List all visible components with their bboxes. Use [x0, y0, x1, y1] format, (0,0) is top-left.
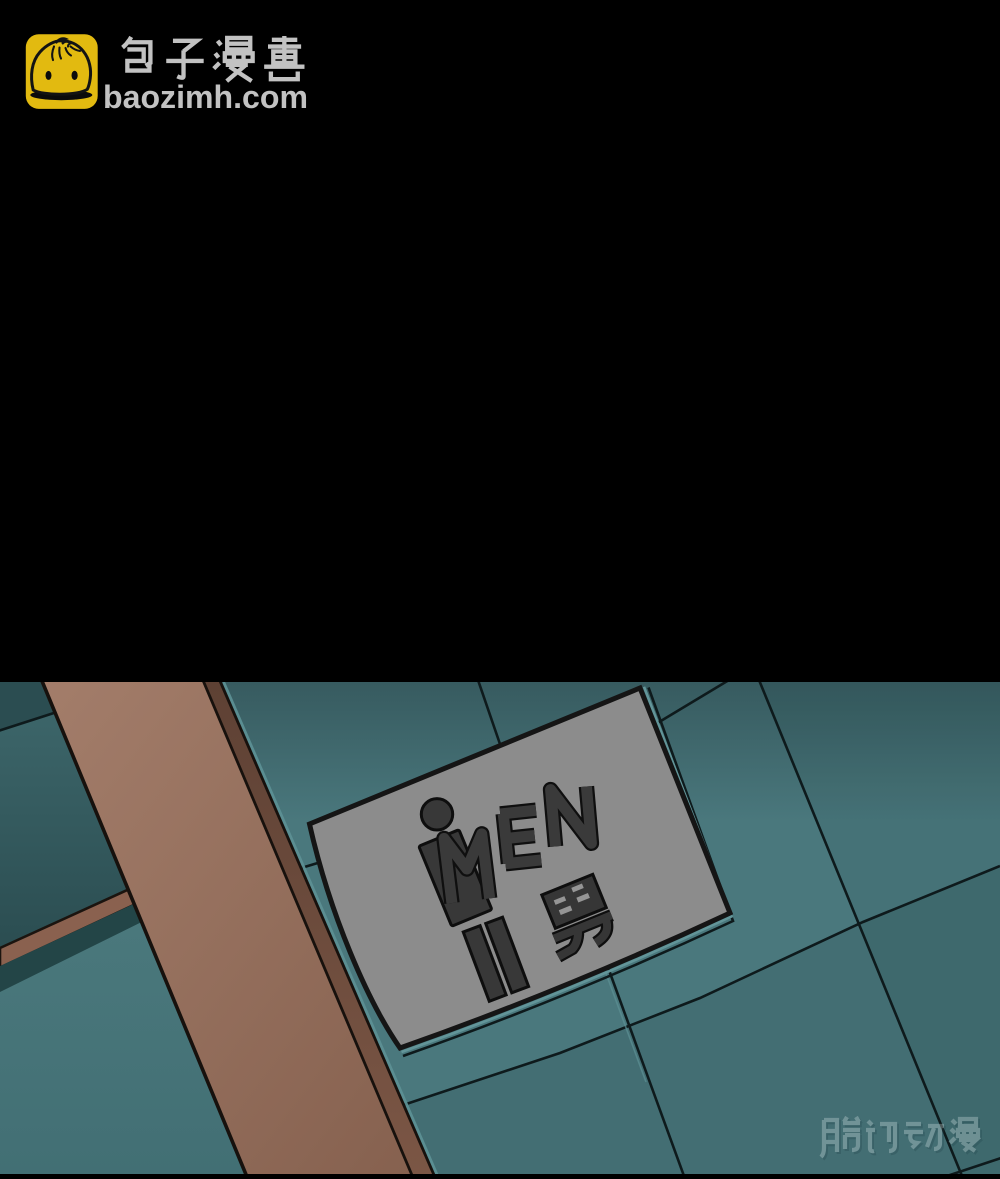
svg-text:baozimh.com: baozimh.com: [103, 79, 308, 115]
